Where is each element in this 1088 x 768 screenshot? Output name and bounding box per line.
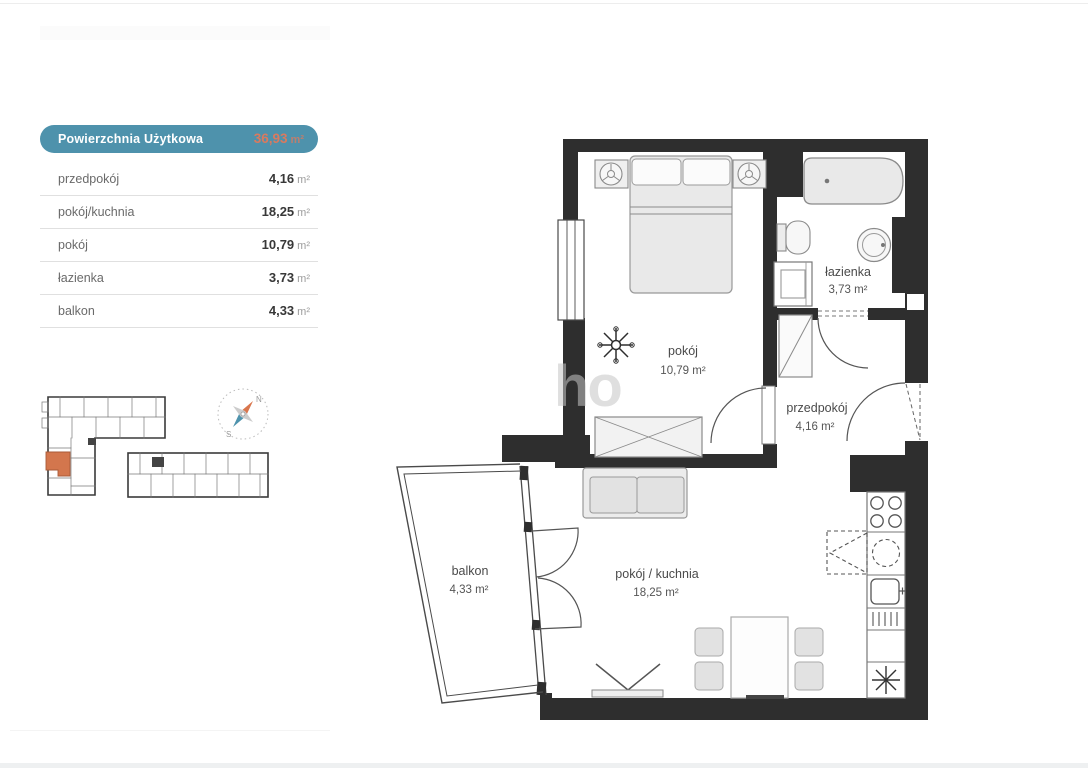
bath-wall-slot bbox=[907, 294, 924, 310]
nightstand-left bbox=[595, 160, 628, 188]
label-pokoj-kuchnia-area: 18,25 m² bbox=[633, 587, 679, 599]
hall-furniture bbox=[779, 315, 812, 377]
door-threshold-bathroom bbox=[818, 311, 868, 316]
building-wing-right bbox=[128, 453, 268, 497]
door-swing-entry bbox=[847, 383, 905, 441]
plan-canvas: N S ho bbox=[0, 0, 1088, 768]
watermark: ho bbox=[554, 354, 621, 419]
label-pokoj-kuchnia: pokój / kuchnia bbox=[615, 567, 698, 581]
wall-top bbox=[563, 139, 928, 152]
living-furniture bbox=[583, 468, 906, 699]
chair bbox=[695, 662, 723, 690]
site-plan bbox=[42, 397, 268, 497]
stair-core bbox=[88, 438, 96, 445]
table-edge bbox=[746, 695, 784, 699]
balcony-stub bbox=[42, 402, 48, 412]
label-lazienka-area: 3,73 m² bbox=[829, 284, 868, 296]
bathtub bbox=[804, 158, 903, 204]
label-przedpokoj: przedpokój bbox=[786, 401, 847, 415]
nightstand-right bbox=[733, 160, 766, 188]
balcony-door-wall bbox=[520, 466, 547, 696]
label-pokoj-area: 10,79 m² bbox=[660, 365, 706, 377]
toilet bbox=[777, 221, 810, 254]
wall-bed-bath bbox=[763, 139, 803, 197]
sofa bbox=[583, 468, 687, 518]
door-leaf-entry-dashed bbox=[906, 384, 920, 440]
tv-stand bbox=[592, 664, 663, 697]
wall-bottom-step bbox=[540, 693, 552, 720]
label-pokoj: pokój bbox=[668, 344, 698, 358]
label-balkon-area: 4,33 m² bbox=[450, 584, 489, 596]
wall-pilaster bbox=[892, 217, 905, 293]
label-przedpokoj-area: 4,16 m² bbox=[796, 421, 835, 433]
washbasin bbox=[858, 229, 891, 262]
washing-machine bbox=[774, 262, 812, 306]
compass-hub bbox=[241, 412, 245, 416]
wardrobe-hall bbox=[779, 315, 812, 377]
wall-bottom bbox=[552, 698, 928, 720]
floorplan-page: Powierzchnia Użytkowa 36,93m² przedpokój… bbox=[0, 0, 1088, 768]
fridge-icon bbox=[872, 666, 900, 694]
compass-north-label: N bbox=[256, 395, 262, 404]
wall-right-upper bbox=[905, 139, 928, 383]
label-lazienka: łazienka bbox=[825, 265, 871, 279]
wall-left-upper bbox=[563, 150, 578, 224]
dining-table bbox=[731, 617, 788, 698]
stair-core bbox=[152, 457, 164, 467]
label-balkon: balkon bbox=[452, 564, 489, 578]
wall-right-lower bbox=[905, 441, 928, 720]
chair bbox=[795, 662, 823, 690]
balcony-stub bbox=[42, 418, 48, 428]
compass-south-label: S bbox=[226, 430, 231, 439]
door-leaf-bedroom bbox=[762, 386, 775, 444]
compass: N S bbox=[218, 389, 268, 439]
chair bbox=[695, 628, 723, 656]
door-swing-bedroom bbox=[711, 388, 766, 443]
dining-set bbox=[695, 617, 823, 699]
kitchen-counter bbox=[827, 492, 906, 698]
wall-bath-bottom-right bbox=[868, 308, 905, 320]
chair bbox=[795, 628, 823, 656]
bathtub-drain bbox=[825, 179, 830, 184]
bed bbox=[630, 156, 732, 293]
wardrobe-bedroom bbox=[595, 417, 702, 457]
window-bedroom bbox=[558, 220, 584, 320]
wall-kitchen-chunk bbox=[850, 455, 907, 492]
door-swing-bathroom bbox=[818, 318, 868, 368]
